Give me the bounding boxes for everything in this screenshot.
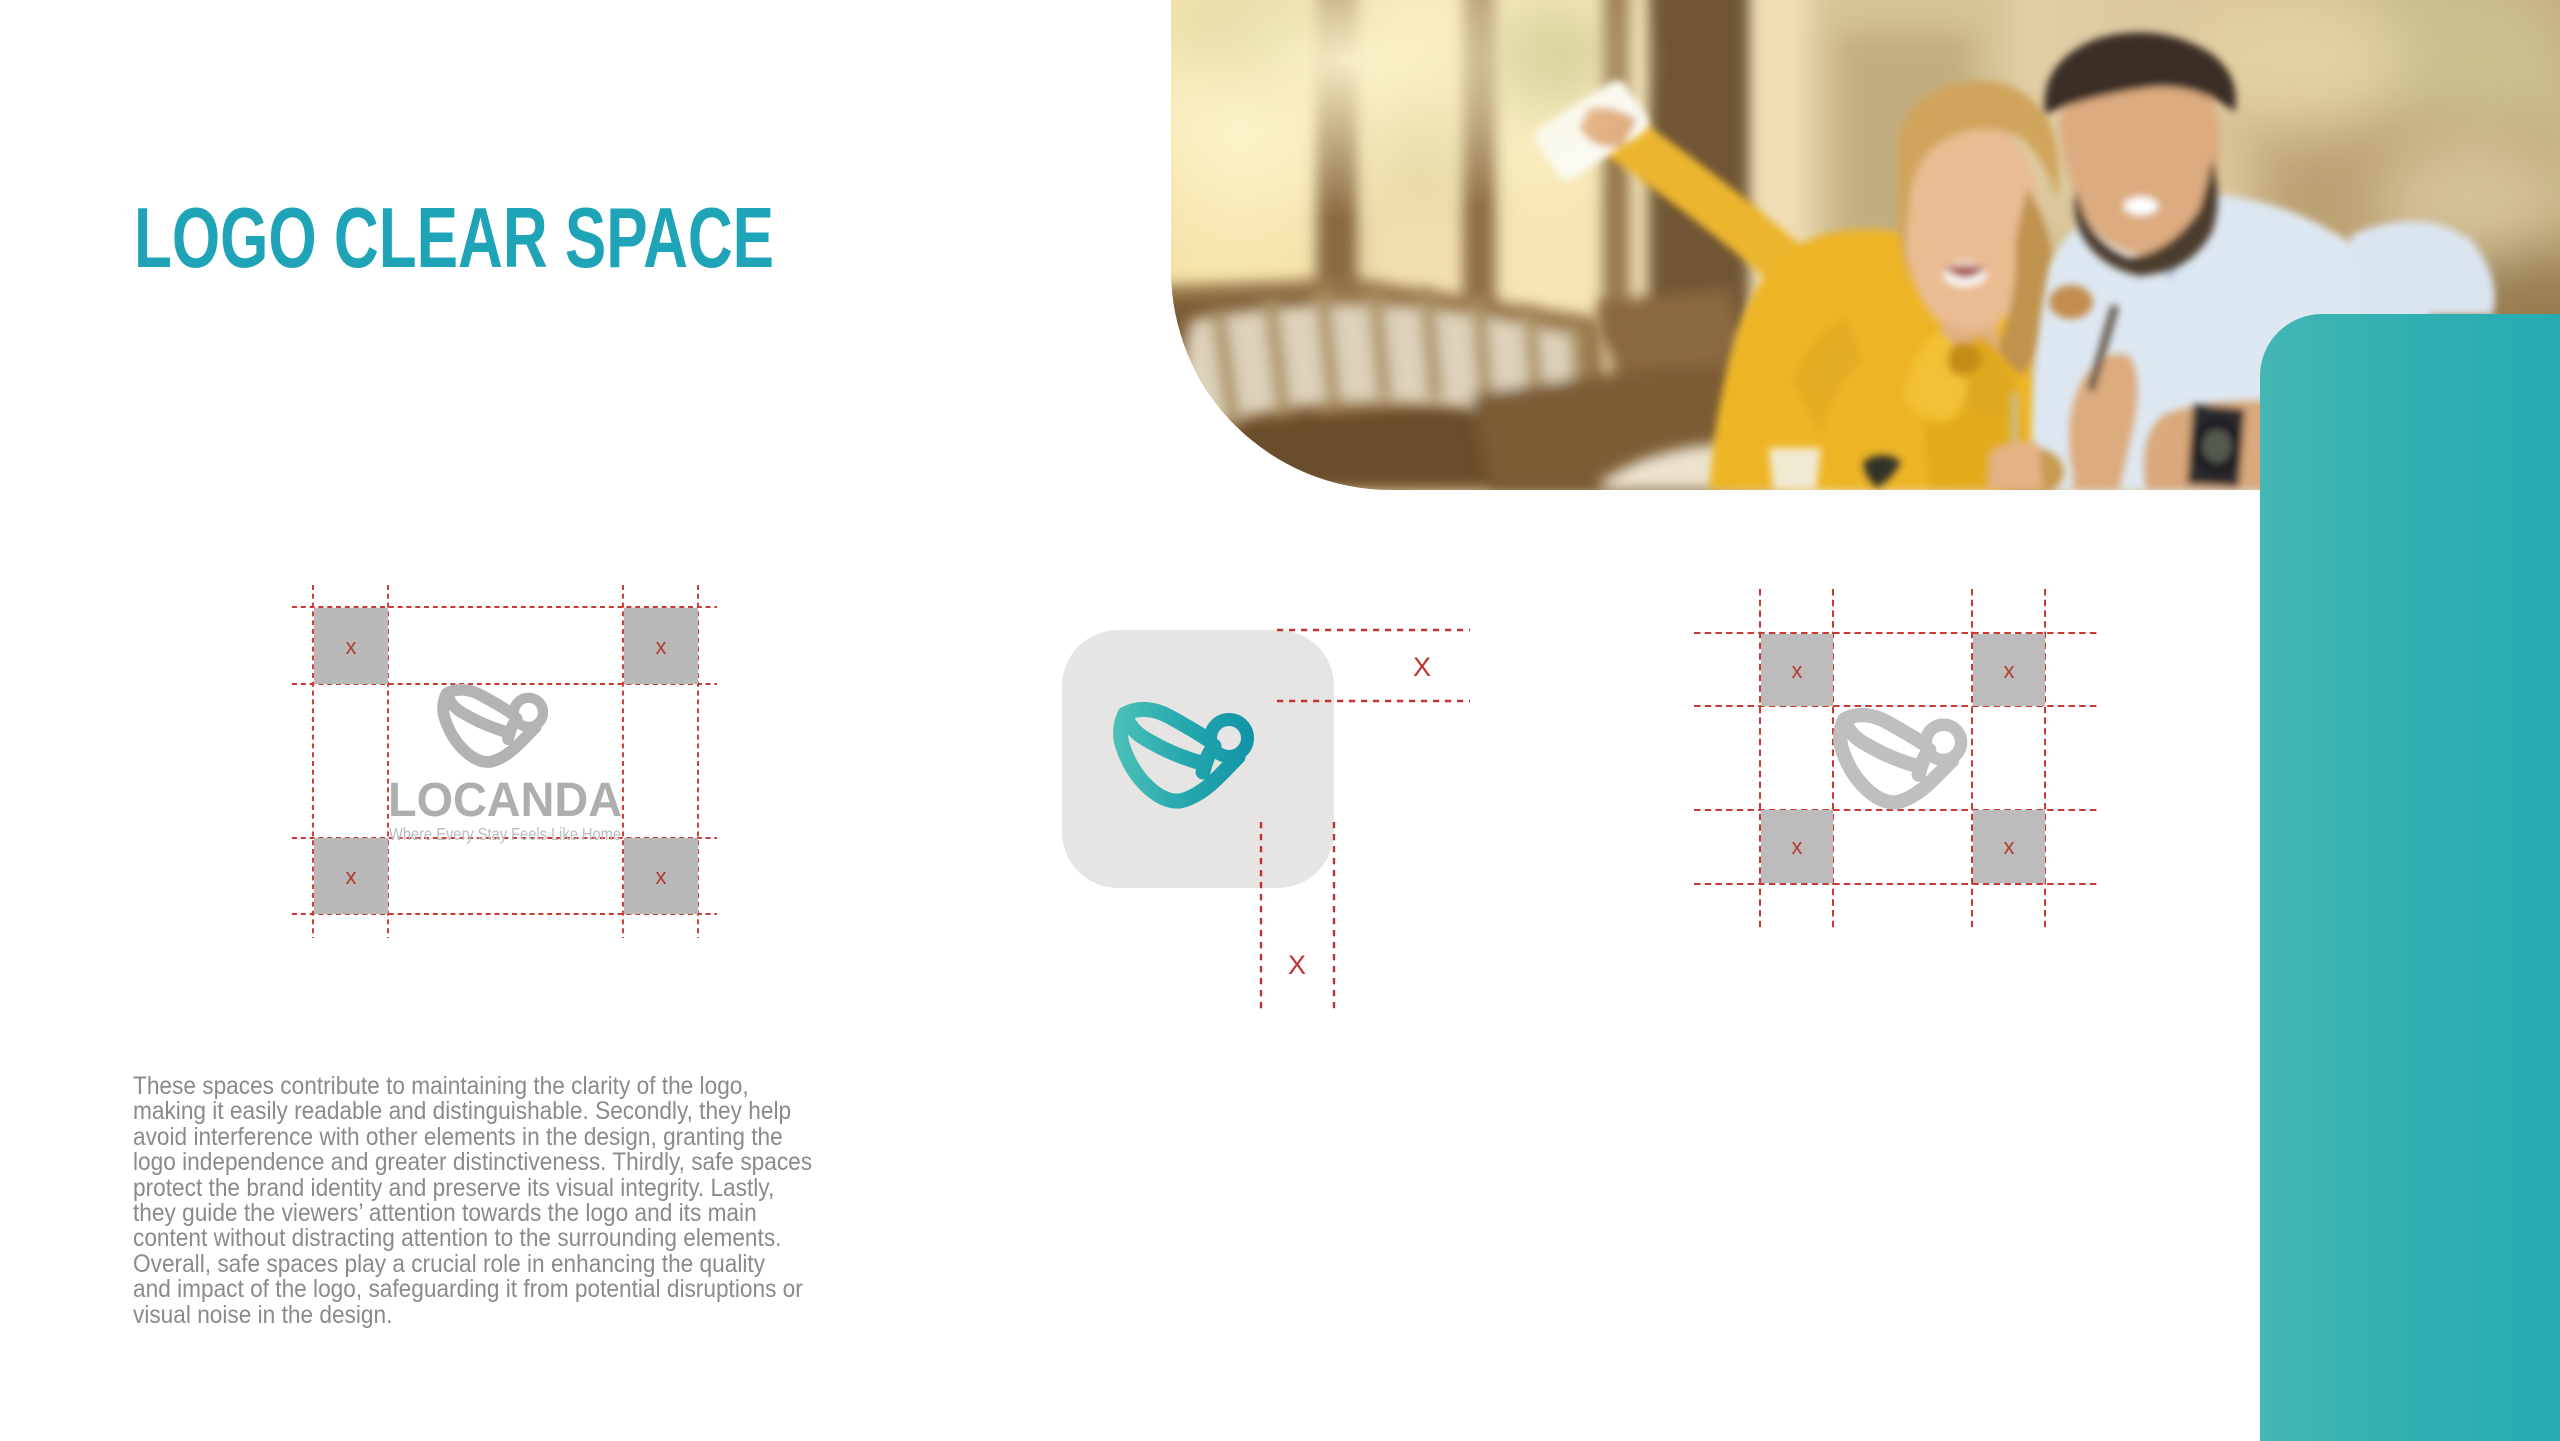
svg-text:X: X xyxy=(1288,950,1306,980)
svg-text:Where Every Stay Feels Like Ho: Where Every Stay Feels Like Home xyxy=(389,824,621,844)
svg-text:x: x xyxy=(2004,658,2015,683)
svg-text:x: x xyxy=(346,864,357,889)
svg-text:x: x xyxy=(1792,658,1803,683)
svg-text:x: x xyxy=(656,864,667,889)
svg-text:x: x xyxy=(656,634,667,659)
svg-text:x: x xyxy=(346,634,357,659)
svg-text:x: x xyxy=(1792,834,1803,859)
svg-text:X: X xyxy=(1413,652,1431,682)
svg-text:x: x xyxy=(2004,834,2015,859)
svg-text:LOCANDA: LOCANDA xyxy=(388,774,622,827)
